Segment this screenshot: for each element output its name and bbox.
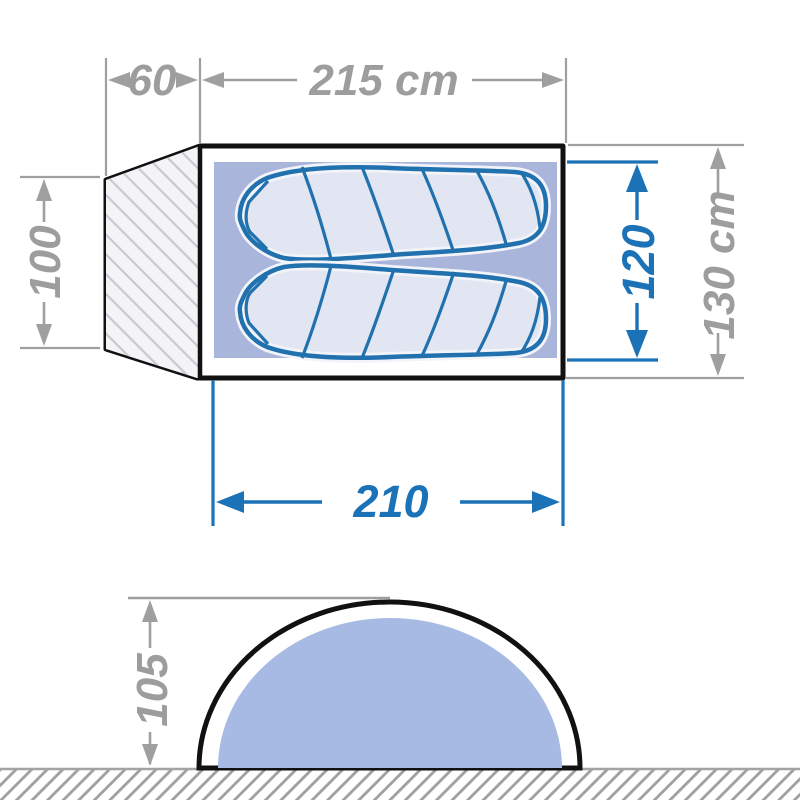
dim-100-arrow-down-icon: [36, 324, 52, 346]
dim-215-label: 215 cm: [308, 56, 458, 105]
dim-bedroom-length-210: 210: [213, 380, 563, 527]
dim-215-arrow-right-icon: [542, 72, 564, 88]
dim-210-arrow-left-icon: [216, 491, 244, 513]
dim-60-label: 60: [128, 56, 177, 105]
dim-215-arrow-left-icon: [202, 72, 224, 88]
dim-inner-width-120: 120: [567, 162, 664, 360]
tent-front-view: [199, 602, 580, 768]
dim-210-label: 210: [352, 476, 428, 527]
dim-120-arrow-up-icon: [626, 164, 648, 192]
dim-120-arrow-down-icon: [626, 330, 648, 358]
dim-105-label: 105: [128, 653, 177, 727]
ground-hatch: [0, 770, 800, 800]
dim-100-arrow-up-icon: [36, 179, 52, 201]
vestibule-hatch: [106, 146, 200, 378]
dim-130-arrow-up-icon: [710, 147, 726, 169]
dim-60-arrow-right-icon: [176, 72, 198, 88]
dim-210-arrow-right-icon: [532, 491, 560, 513]
dim-100-label: 100: [21, 225, 70, 299]
tent-dimensions-diagram: 105 60 215 cm: [0, 0, 800, 800]
dim-120-label: 120: [613, 224, 664, 299]
sleeping-bag-top: [240, 167, 546, 260]
dim-130-label: 130 cm: [695, 190, 744, 339]
dim-105-arrow-down-icon: [142, 744, 158, 766]
dim-105-arrow-up-icon: [142, 600, 158, 622]
ground: [0, 769, 800, 800]
sleeping-bag-bottom: [240, 265, 546, 358]
dim-130-arrow-down-icon: [710, 354, 726, 376]
dim-inner-length-215: 215 cm: [202, 56, 566, 143]
dim-porch-width-100: 100: [20, 177, 100, 348]
tent-top-view: [106, 146, 563, 378]
diagram-svg: 105 60 215 cm: [0, 0, 800, 800]
